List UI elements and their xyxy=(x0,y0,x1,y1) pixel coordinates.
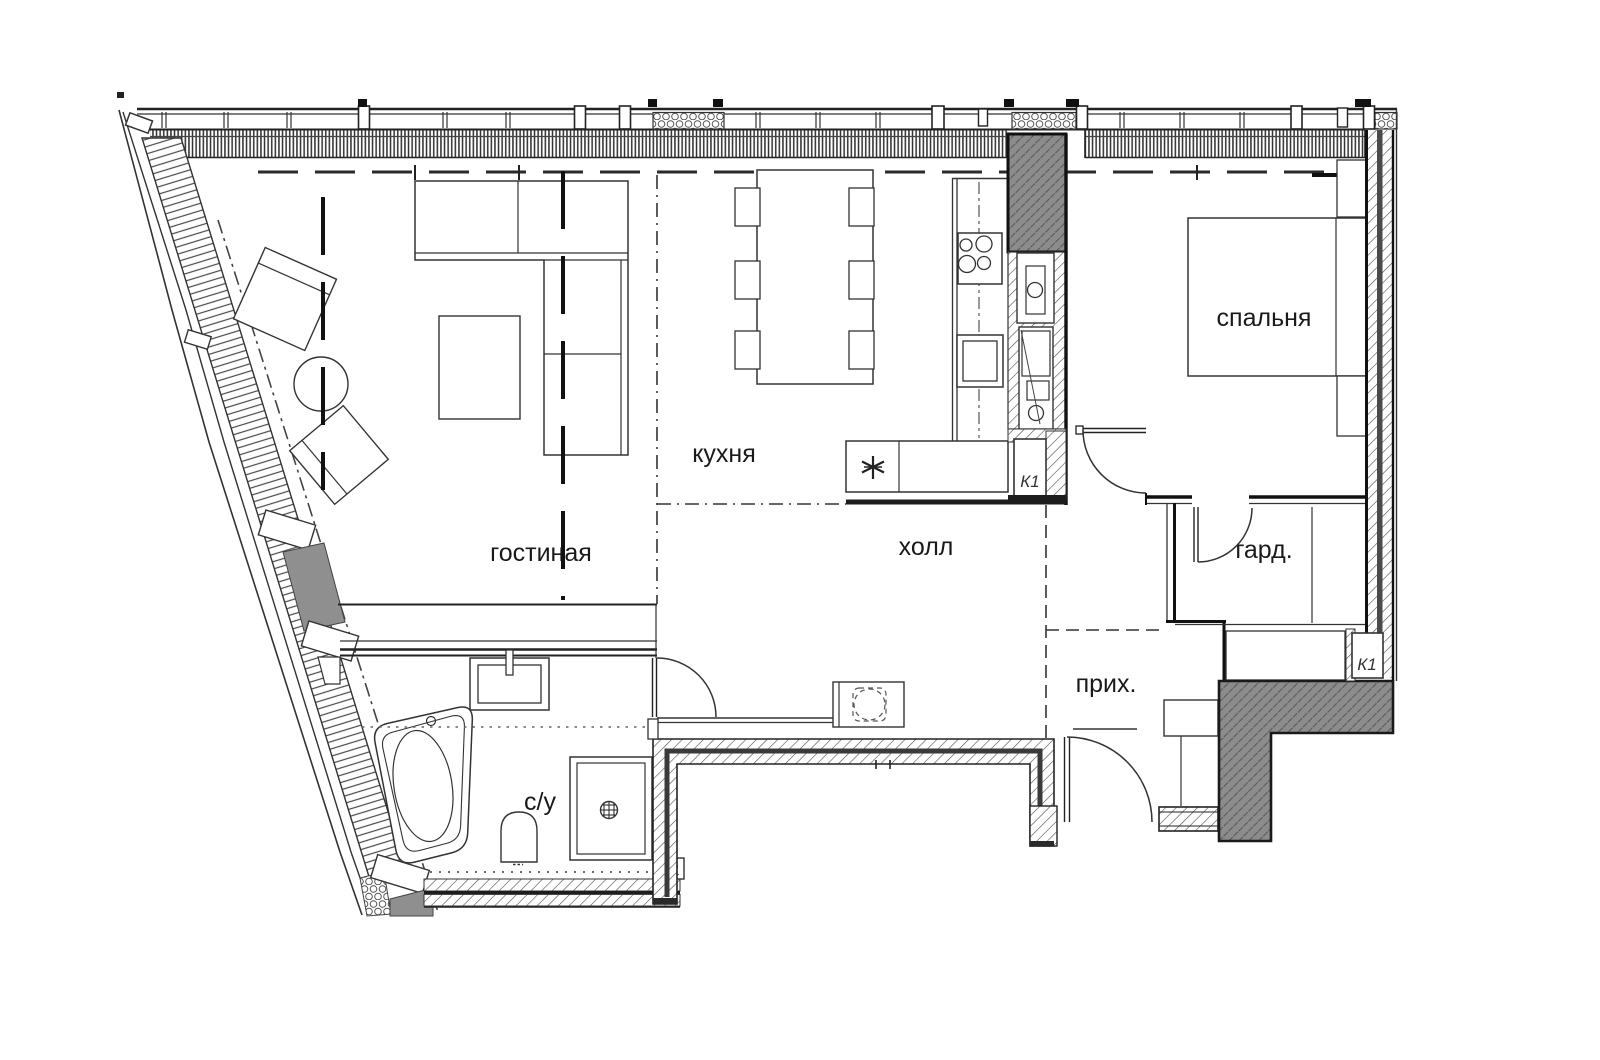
svg-text:холл: холл xyxy=(899,533,954,561)
svg-text:прих.: прих. xyxy=(1076,670,1137,698)
svg-text:К1: К1 xyxy=(1357,655,1376,674)
svg-text:гостиная: гостиная xyxy=(490,539,592,567)
svg-text:К1: К1 xyxy=(1020,472,1039,491)
svg-text:гард.: гард. xyxy=(1235,536,1292,564)
svg-text:с/у: с/у xyxy=(524,788,556,816)
svg-text:спальня: спальня xyxy=(1217,304,1312,332)
svg-text:кухня: кухня xyxy=(692,440,756,468)
